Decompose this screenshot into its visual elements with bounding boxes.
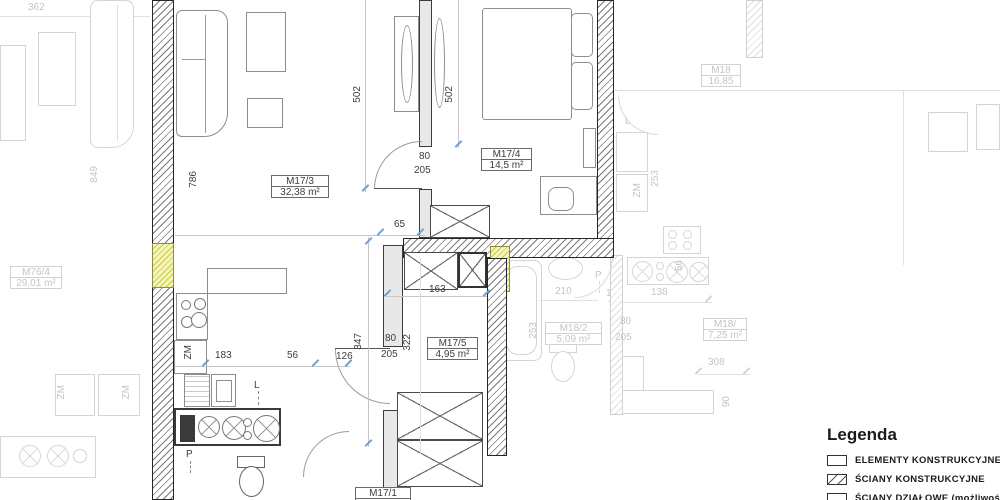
toilet-bowl <box>551 351 575 382</box>
dim-text-163: 163 <box>429 285 446 295</box>
dim-text-90: 90 <box>722 396 732 407</box>
burner-icon <box>668 230 677 239</box>
dim-line <box>458 0 459 148</box>
mark-zm-right: ZM <box>633 183 643 197</box>
room-label-m18-x: M18/ 7,25 m² <box>703 318 747 341</box>
tv-bench <box>247 98 283 128</box>
dim-line <box>612 302 712 303</box>
dim-line <box>420 258 421 454</box>
legend-item-partition-walls: ŚCIANY DZIAŁOWE (możliwość <box>827 493 1000 500</box>
burner-icon <box>668 241 677 250</box>
kitchen-counter-lower <box>174 408 281 446</box>
sofa-seam <box>182 59 205 60</box>
dim-text-210: 210 <box>555 287 572 297</box>
legend-item-structural-elements: ELEMENTY KONSTRUKCYJNE <box>827 455 1000 466</box>
legend-swatch-partition-icon <box>827 493 847 500</box>
room-area: 16,85 <box>701 75 741 87</box>
bed <box>482 8 572 120</box>
sofa-seam <box>205 15 206 133</box>
radiator <box>583 128 596 168</box>
cooktop <box>176 293 208 340</box>
mark-l-main: L <box>254 381 260 391</box>
room-area: 29,01 m² <box>10 277 62 289</box>
sink-icon <box>19 445 41 467</box>
burner-icon <box>194 298 206 310</box>
sink-icon <box>47 445 69 467</box>
shaft-box <box>458 252 487 288</box>
burner-icon <box>243 431 252 440</box>
room-label-m17-1: M17/1 <box>355 487 411 500</box>
kitchen-counter-faded <box>627 257 709 285</box>
chair <box>548 187 574 211</box>
wardrobe-hall-b <box>397 440 483 487</box>
wall-line-faded <box>614 90 1000 91</box>
cabinet-faded <box>616 132 648 172</box>
dim-text-253a: 253 <box>529 322 539 339</box>
room-label-m76-4: M76/4 29,01 m² <box>10 266 62 289</box>
room-label-m18: M18 16,85 <box>701 64 741 87</box>
dim-text-56b: 56 <box>675 260 685 271</box>
dim-text-308: 308 <box>708 358 725 368</box>
mirror-cabinet <box>394 16 419 112</box>
door-arc-faded <box>618 95 658 135</box>
burner-icon <box>181 300 191 310</box>
dim-line <box>698 374 750 375</box>
wall-faded-top-right <box>746 0 763 58</box>
pillow <box>571 13 593 57</box>
furniture-faded <box>928 112 968 152</box>
mirror-icon <box>401 25 413 103</box>
counter-faded <box>622 356 644 392</box>
dim-line <box>540 300 598 301</box>
dim-text-56a: 56 <box>287 351 298 361</box>
room-label-m18-2: M18/2 5,09 m² <box>545 322 602 345</box>
pillow <box>571 62 593 110</box>
wardrobe-neighbour <box>0 45 26 141</box>
structural-element-left <box>152 243 174 288</box>
sink-icon <box>632 261 653 282</box>
mark-zm-main: ZM <box>184 345 194 359</box>
room-label-m17-4: M17/4 14,5 m² <box>481 148 532 171</box>
dim-line <box>387 296 487 297</box>
floor-plan: 362 849 M76/4 29,01 m² ZM ZM M18 16,85 L… <box>0 0 1000 500</box>
door-arc-entry <box>303 431 349 477</box>
sofa-neighbour <box>90 0 134 148</box>
toilet-bowl <box>239 466 264 497</box>
room-area: 4,95 m² <box>427 348 478 360</box>
washing-machine <box>184 374 210 407</box>
dim-text-205b: 205 <box>381 350 398 360</box>
sink-icon <box>689 262 709 282</box>
dim-text-502b: 502 <box>445 86 455 103</box>
kitchen-counter-neighbour <box>0 436 96 478</box>
dim-text-347: 347 <box>354 333 364 350</box>
dim-text-205a: 205 <box>414 166 431 176</box>
door-leaf <box>374 188 422 189</box>
wardrobe-hall-a <box>397 392 483 440</box>
coffee-table <box>246 12 286 72</box>
wardrobe-bedroom <box>430 205 490 238</box>
dim-text-126: 126 <box>336 352 353 362</box>
oven <box>211 374 236 407</box>
legend-label: ŚCIANY KONSTRUKCYJNE <box>855 474 985 485</box>
dim-text-502a: 502 <box>353 86 363 103</box>
wall-bath-right <box>487 258 507 456</box>
room-area: 7,25 m² <box>703 329 747 341</box>
burner-icon <box>73 449 87 463</box>
dim-line <box>175 366 350 367</box>
wall-right-bedroom-structural <box>597 0 614 240</box>
mark-zm-neighbour-a: ZM <box>57 385 67 399</box>
sofa <box>176 10 228 137</box>
burner-icon <box>191 312 207 328</box>
dim-line <box>365 0 366 192</box>
dim-text-322: 322 <box>403 334 413 351</box>
mark-p-main: P <box>186 450 193 460</box>
dim-text-80b: 80 <box>385 334 396 344</box>
legend-item-structural-walls: ŚCIANY KONSTRUKCYJNE <box>827 474 985 485</box>
dim-text-205c: 205 <box>615 333 632 343</box>
burner-icon <box>683 230 692 239</box>
dim-line <box>368 237 369 447</box>
dim-text-138: 138 <box>651 288 668 298</box>
legend-swatch-yellow-hatch-icon <box>827 455 847 466</box>
dim-text-362: 362 <box>28 3 45 13</box>
leader-line <box>258 391 259 405</box>
burner-icon <box>656 262 664 270</box>
dim-text-80a: 80 <box>419 152 430 162</box>
dim-text-65: 65 <box>394 220 405 230</box>
bathtub-inner <box>506 266 537 355</box>
appliance-dark <box>180 415 195 442</box>
dim-text-80c: 80 <box>620 317 631 327</box>
legend-title: Legenda <box>827 425 897 445</box>
legend-label: ŚCIANY DZIAŁOWE (możliwość <box>855 493 1000 500</box>
cooktop-faded <box>663 226 701 254</box>
dim-line <box>175 235 425 236</box>
room-label-m17-3: M17/3 32,38 m² <box>271 175 329 198</box>
oven-door <box>216 380 232 402</box>
dim-text-786: 786 <box>189 171 199 188</box>
room-area: 14,5 m² <box>481 159 532 171</box>
cabinet-neighbour-b <box>98 374 140 416</box>
room-area: 5,09 m² <box>545 333 602 345</box>
kitchen-counter-upper <box>207 268 287 294</box>
burner-icon <box>656 273 664 281</box>
wall-partition-living-bedroom <box>419 0 432 147</box>
wall-line-faded <box>903 90 904 265</box>
furniture-faded <box>976 104 1000 150</box>
sink-icon <box>198 416 220 438</box>
sofa-seam <box>117 5 118 141</box>
legend-label: ELEMENTY KONSTRUKCYJNE <box>855 455 1000 466</box>
counter-faded <box>622 390 714 414</box>
mark-zm-neighbour-b: ZM <box>122 385 132 399</box>
room-area: 32,38 m² <box>271 186 329 198</box>
room-label-m17-5: M17/5 4,95 m² <box>427 337 478 360</box>
sink-icon <box>253 415 280 442</box>
dim-text-183: 183 <box>215 351 232 361</box>
table-neighbour <box>38 32 76 106</box>
dim-text-849: 849 <box>90 166 100 183</box>
burner-icon <box>243 418 252 427</box>
legend-swatch-diagonal-hatch-icon <box>827 474 847 485</box>
leader-line <box>190 461 191 473</box>
dim-text-253b: 253 <box>651 170 661 187</box>
burner-icon <box>683 241 692 250</box>
